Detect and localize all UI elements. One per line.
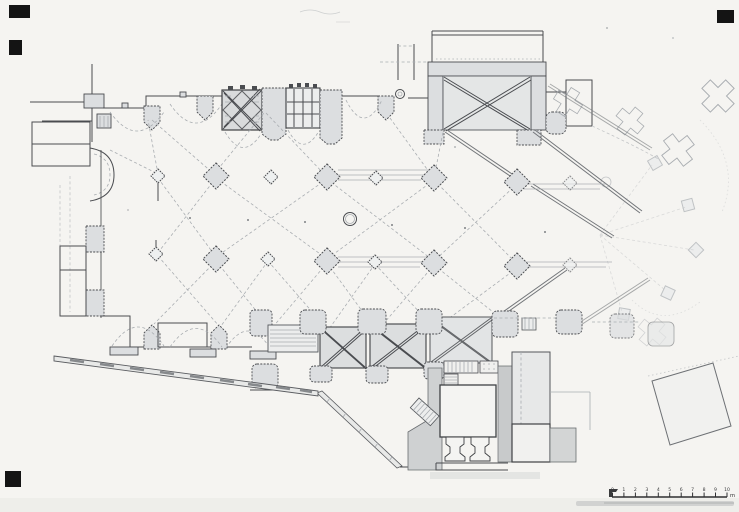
svg-text:9: 9 bbox=[714, 487, 717, 493]
svg-text:0: 0 bbox=[611, 487, 614, 493]
registration-mark-top-left-lower bbox=[9, 40, 22, 55]
registration-mark-top-left-upper bbox=[9, 5, 30, 18]
svg-text:7: 7 bbox=[691, 487, 694, 493]
svg-text:4: 4 bbox=[657, 487, 660, 493]
svg-text:5: 5 bbox=[668, 487, 671, 493]
svg-text:3: 3 bbox=[645, 487, 648, 493]
svg-text:1: 1 bbox=[622, 487, 625, 493]
scale-bar-unit: m bbox=[730, 493, 735, 499]
svg-text:2: 2 bbox=[634, 487, 637, 493]
registration-mark-top-right bbox=[717, 10, 734, 23]
svg-text:8: 8 bbox=[703, 487, 706, 493]
registration-mark-bottom-left bbox=[5, 471, 21, 487]
floor-plan-svg: 0 1 2 3 4 5 6 7 8 9 10 m bbox=[0, 0, 739, 512]
svg-text:6: 6 bbox=[680, 487, 683, 493]
scanned-plan-page: 0 1 2 3 4 5 6 7 8 9 10 m bbox=[0, 0, 739, 512]
